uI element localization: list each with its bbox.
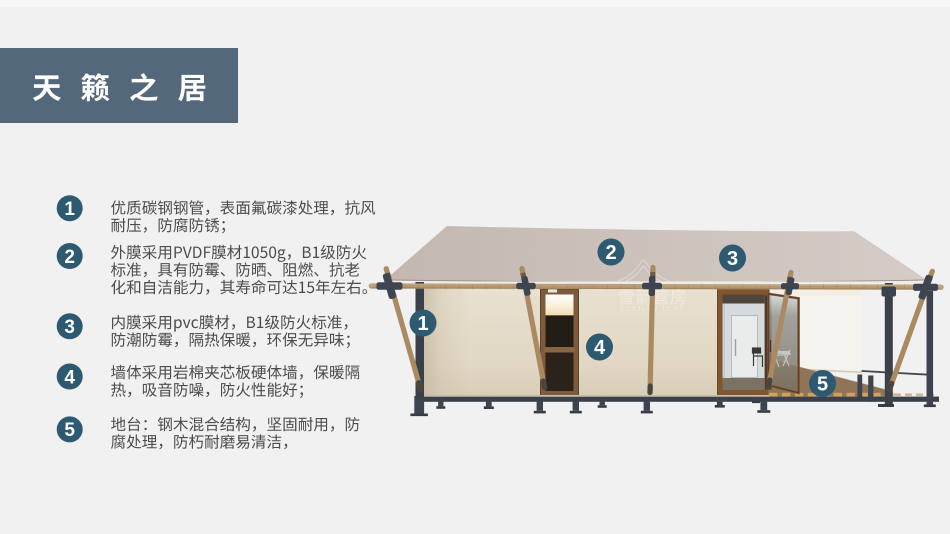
svg-text:4: 4 [594, 337, 606, 359]
svg-text:3: 3 [64, 317, 75, 338]
svg-text:2: 2 [64, 247, 75, 268]
svg-text:1: 1 [417, 313, 428, 335]
svg-text:3: 3 [727, 248, 738, 270]
svg-text:1: 1 [64, 199, 75, 220]
svg-text:5: 5 [64, 420, 75, 441]
svg-text:4: 4 [64, 367, 75, 388]
svg-text:5: 5 [817, 374, 828, 396]
svg-text:2: 2 [605, 242, 616, 264]
